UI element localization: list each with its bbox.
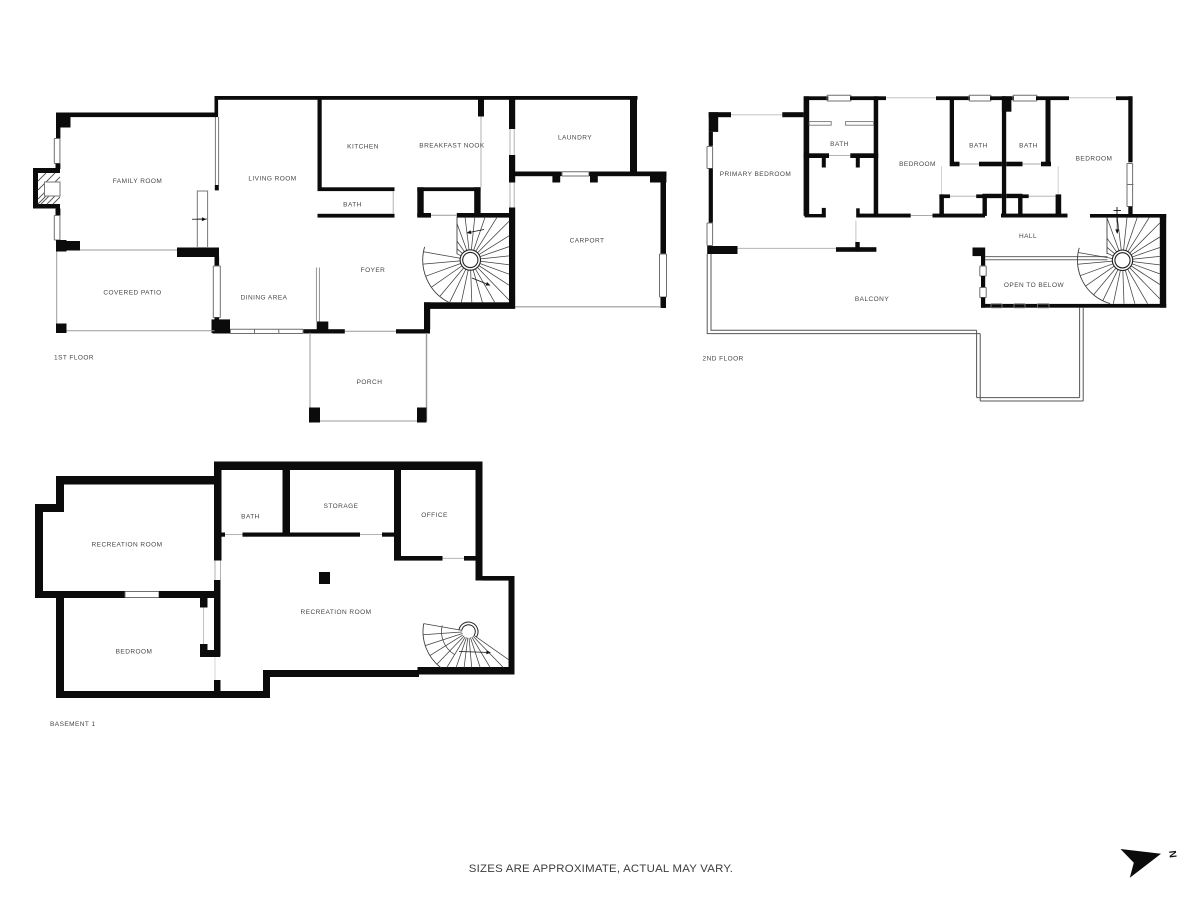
svg-text:PRIMARY BEDROOM: PRIMARY BEDROOM: [720, 171, 792, 178]
svg-text:BATH: BATH: [969, 143, 988, 150]
svg-text:RECREATION ROOM: RECREATION ROOM: [92, 542, 163, 549]
svg-text:N: N: [1166, 850, 1178, 859]
svg-text:PORCH: PORCH: [357, 379, 383, 386]
svg-text:LIVING ROOM: LIVING ROOM: [248, 176, 296, 183]
svg-text:1ST FLOOR: 1ST FLOOR: [54, 355, 94, 362]
svg-text:BEDROOM: BEDROOM: [116, 649, 153, 656]
svg-text:RECREATION ROOM: RECREATION ROOM: [301, 609, 372, 616]
svg-text:BEDROOM: BEDROOM: [899, 161, 936, 168]
svg-text:LAUNDRY: LAUNDRY: [558, 135, 592, 142]
svg-text:SIZES ARE APPROXIMATE, ACTUAL: SIZES ARE APPROXIMATE, ACTUAL MAY VARY.: [469, 863, 733, 875]
svg-text:COVERED PATIO: COVERED PATIO: [103, 290, 161, 297]
svg-text:OPEN TO BELOW: OPEN TO BELOW: [1004, 282, 1065, 289]
svg-text:KITCHEN: KITCHEN: [347, 144, 379, 151]
svg-text:BATH: BATH: [830, 141, 849, 148]
svg-text:DINING AREA: DINING AREA: [241, 295, 288, 302]
svg-text:HALL: HALL: [1019, 233, 1037, 240]
svg-text:BASEMENT 1: BASEMENT 1: [50, 721, 96, 728]
svg-text:BATH: BATH: [343, 202, 362, 209]
svg-text:BREAKFAST NOOK: BREAKFAST NOOK: [419, 143, 485, 150]
svg-text:STORAGE: STORAGE: [324, 503, 359, 510]
svg-text:FAMILY ROOM: FAMILY ROOM: [113, 178, 163, 185]
svg-text:BEDROOM: BEDROOM: [1076, 156, 1113, 163]
svg-text:CARPORT: CARPORT: [570, 238, 605, 245]
svg-text:BATH: BATH: [241, 514, 260, 521]
svg-text:2ND FLOOR: 2ND FLOOR: [703, 356, 744, 363]
svg-text:OFFICE: OFFICE: [421, 512, 448, 519]
svg-text:BALCONY: BALCONY: [855, 296, 889, 303]
svg-text:BATH: BATH: [1019, 143, 1038, 150]
svg-text:FOYER: FOYER: [361, 267, 386, 274]
